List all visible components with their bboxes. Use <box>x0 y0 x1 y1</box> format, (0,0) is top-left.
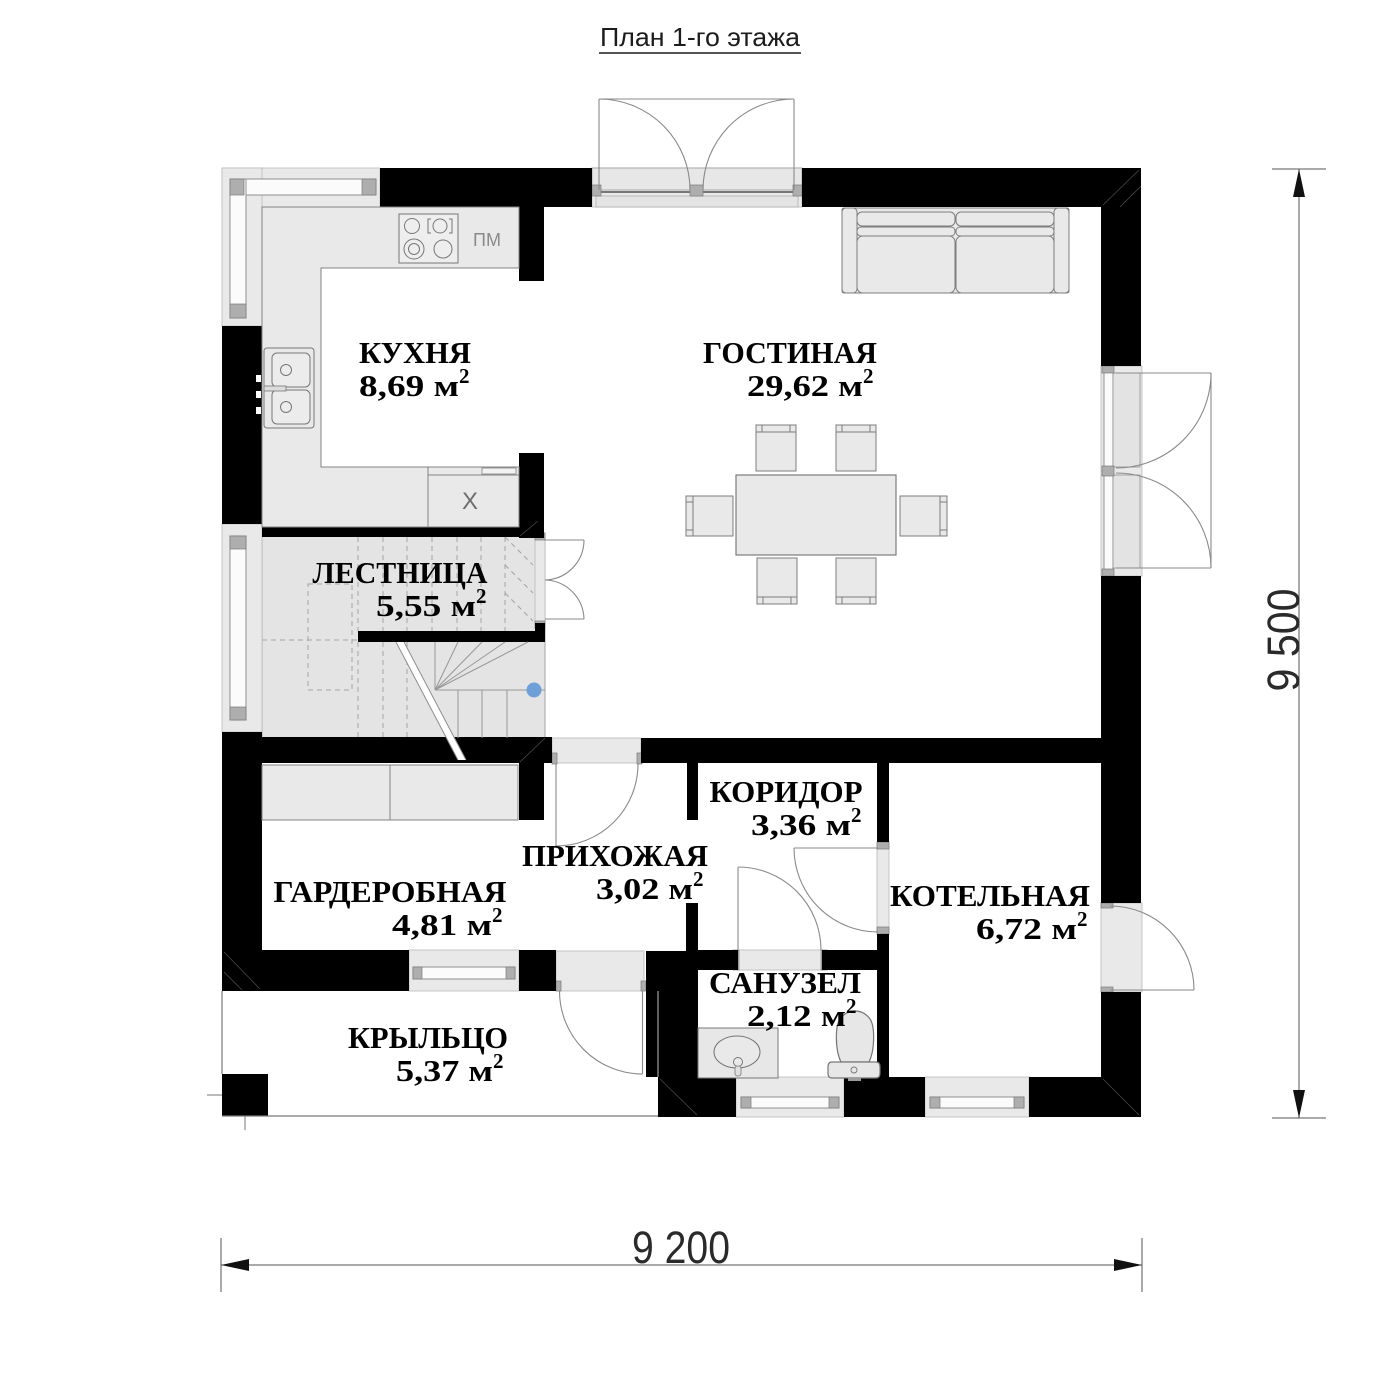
svg-text:ГАРДЕРОБНАЯ: ГАРДЕРОБНАЯ <box>274 874 507 909</box>
svg-text:9 500: 9 500 <box>1258 589 1309 692</box>
svg-text:КОТЕЛЬНАЯ: КОТЕЛЬНАЯ <box>890 878 1090 913</box>
svg-text:КОРИДОР: КОРИДОР <box>710 774 863 809</box>
svg-text:КУХНЯ: КУХНЯ <box>359 335 471 370</box>
svg-text:План 1-го этажа: План 1-го этажа <box>600 22 801 52</box>
svg-text:ПМ: ПМ <box>473 230 501 250</box>
svg-text:3,02 м: 3,02 м <box>596 871 693 906</box>
svg-text:X: X <box>462 488 478 515</box>
svg-text:2: 2 <box>476 584 487 608</box>
svg-text:2: 2 <box>492 903 503 927</box>
svg-text:ЛЕСТНИЦА: ЛЕСТНИЦА <box>313 555 489 590</box>
svg-text:5,55 м: 5,55 м <box>376 588 476 623</box>
svg-text:6,72 м: 6,72 м <box>976 911 1077 946</box>
svg-text:29,62 м: 29,62 м <box>747 368 863 403</box>
svg-text:ГОСТИНАЯ: ГОСТИНАЯ <box>703 335 877 370</box>
svg-text:ПРИХОЖАЯ: ПРИХОЖАЯ <box>522 838 708 873</box>
svg-text:3,36 м: 3,36 м <box>751 807 851 842</box>
svg-text:2: 2 <box>493 1049 504 1073</box>
svg-text:2: 2 <box>863 364 874 388</box>
svg-text:2: 2 <box>851 803 862 827</box>
svg-text:2: 2 <box>846 994 857 1018</box>
svg-text:5,37 м: 5,37 м <box>396 1053 493 1088</box>
svg-text:КРЫЛЬЦО: КРЫЛЬЦО <box>348 1020 508 1055</box>
svg-text:8,69 м: 8,69 м <box>359 368 459 403</box>
svg-text:САНУЗЕЛ: САНУЗЕЛ <box>709 965 861 1000</box>
svg-text:2,12 м: 2,12 м <box>747 998 846 1033</box>
svg-text:4,81 м: 4,81 м <box>392 907 492 942</box>
svg-text:2: 2 <box>1077 907 1088 931</box>
svg-text:9 200: 9 200 <box>632 1222 730 1273</box>
svg-text:2: 2 <box>459 364 470 388</box>
svg-text:2: 2 <box>693 867 704 891</box>
